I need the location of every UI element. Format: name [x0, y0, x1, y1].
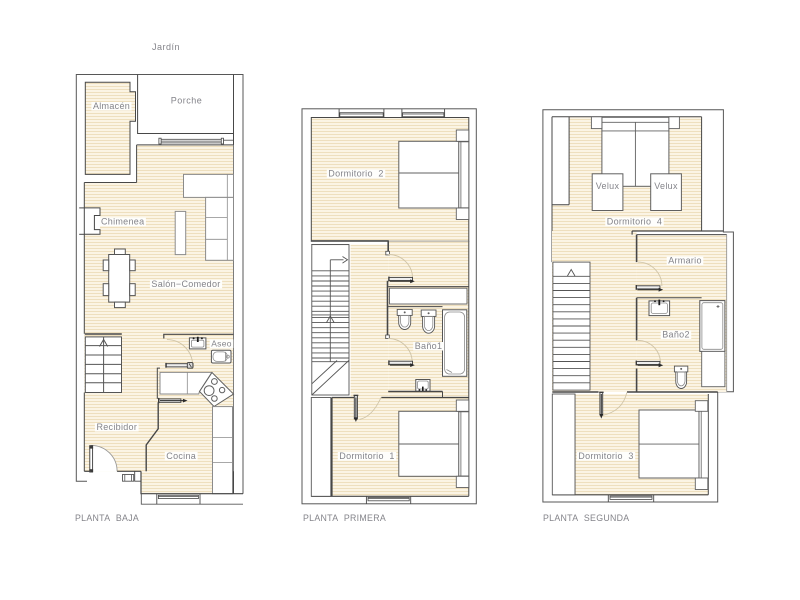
- svg-text:Baño2: Baño2: [662, 330, 690, 340]
- svg-text:Aseo: Aseo: [211, 339, 232, 349]
- svg-text:PLANTA PRIMERA: PLANTA PRIMERA: [303, 513, 386, 523]
- svg-text:PLANTA SEGUNDA: PLANTA SEGUNDA: [543, 513, 629, 523]
- svg-text:Dormitorio 3: Dormitorio 3: [578, 451, 633, 461]
- svg-text:Porche: Porche: [171, 96, 203, 106]
- svg-text:Recibidor: Recibidor: [96, 422, 137, 432]
- svg-text:PLANTA BAJA: PLANTA BAJA: [75, 513, 139, 523]
- svg-text:Jardín: Jardín: [152, 42, 180, 52]
- svg-text:Velux: Velux: [654, 181, 678, 191]
- svg-text:Cocina: Cocina: [166, 451, 196, 461]
- svg-text:Armario: Armario: [668, 256, 702, 266]
- svg-text:Baño1: Baño1: [415, 341, 443, 351]
- svg-text:Almacén: Almacén: [93, 101, 130, 111]
- svg-text:Dormitorio 1: Dormitorio 1: [339, 451, 394, 461]
- svg-text:Dormitorio 2: Dormitorio 2: [328, 169, 383, 179]
- svg-text:Velux: Velux: [596, 181, 620, 191]
- svg-text:Salón−Comedor: Salón−Comedor: [151, 279, 220, 289]
- svg-text:Chimenea: Chimenea: [101, 217, 144, 227]
- svg-text:Dormitorio 4: Dormitorio 4: [607, 217, 662, 227]
